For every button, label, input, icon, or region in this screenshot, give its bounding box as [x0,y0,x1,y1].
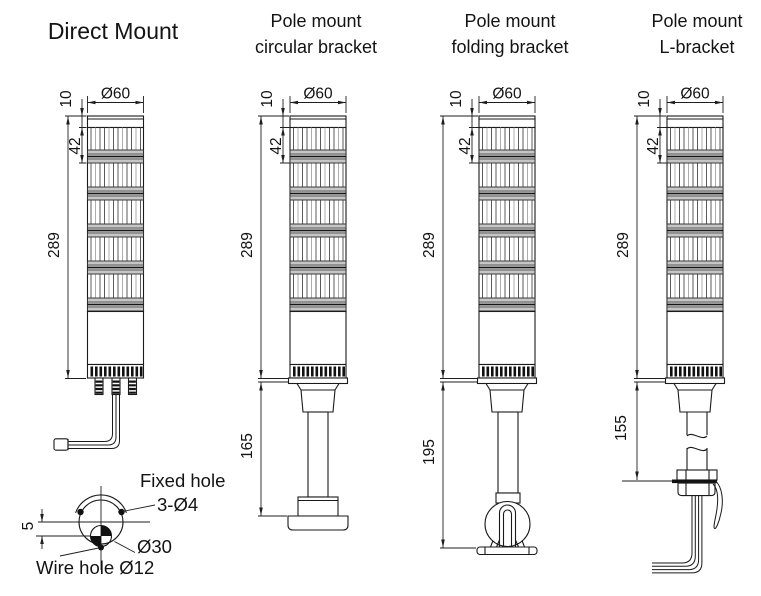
fixed-hole-dot-right [118,509,124,515]
title-pole-l-line1: Pole mount [651,11,742,31]
dim-label-height-l: 289 [615,232,632,258]
dim-label-height-folding: 289 [421,232,438,258]
dim-label-cap-folding: 10 [448,90,465,108]
dim-label-offset: 5 [20,522,37,531]
dim-label-pole-folding: 195 [421,439,438,465]
adapter [297,384,339,413]
direct-mount-base [54,378,137,450]
label-fixed-hole: Fixed hole [140,470,225,491]
stud-center [112,378,120,395]
title-pole-folding-line2: folding bracket [451,37,568,57]
title-pole-folding-line1: Pole mount [464,11,555,31]
label-fixed-hole-spec: 3-Ø4 [157,494,198,515]
direct-mount-view: Direct Mount Ø60 10 42 289 [20,18,225,578]
title-direct-mount: Direct Mount [48,18,179,44]
bottom-view: 5 Fixed hole 3-Ø4 Ø30 Wire hole Ø12 [20,470,225,578]
hinge-ball [485,502,530,547]
upper-nut [677,470,717,480]
wire-sleeve [54,439,68,450]
label-wire-hole: Wire hole Ø12 [36,557,154,578]
dim-label-diameter-folding: Ø60 [492,86,522,103]
dim-label-height-circular: 289 [239,232,256,258]
dim-label-segment-direct: 42 [67,137,84,154]
circular-bracket-base [288,378,348,530]
flange [666,378,725,384]
fixed-hole-dot-left [77,509,83,515]
pole-circular-view: Pole mount circular bracket Ø60 10 42 28… [239,11,377,530]
dim-label-pole-circular: 165 [239,433,256,459]
tower-graphic [667,116,723,378]
dim-label-segment-circular: 42 [268,137,285,154]
technical-drawing-canvas: Direct Mount Ø60 10 42 289 [0,0,761,596]
stud-right [129,378,137,395]
dim-label-pole-l: 155 [613,415,630,441]
pole-break-lines [687,434,707,450]
flange [478,378,537,384]
dim-label-diameter-circular: Ø60 [303,86,333,103]
stud-left [95,378,103,395]
base-sleeve [298,497,338,516]
wire-bundle [68,395,120,449]
label-flange-diameter: Ø30 [137,536,172,557]
tower-graphic [479,116,535,378]
wire-bundle [652,496,702,573]
adapter [486,384,528,413]
dim-label-cap-circular: 10 [259,90,276,108]
base-disc [288,516,348,530]
tower-graphic [88,116,144,378]
pole-l-view: Pole mount L-bracket Ø60 [613,11,743,573]
pole [308,412,328,497]
title-pole-l-line2: L-bracket [659,37,734,57]
title-pole-circular-line1: Pole mount [270,11,361,31]
fixed-hole-dot-bottom [98,545,104,551]
dim-label-segment-folding: 42 [457,137,474,154]
flange [289,378,348,384]
folding-bracket-base [477,378,537,555]
dim-label-diameter-direct: Ø60 [101,86,131,103]
pole [498,412,518,493]
base-plate [477,547,537,555]
dim-label-cap-direct: 10 [58,90,75,108]
drawing-svg: Direct Mount Ø60 10 42 289 [0,0,761,596]
tower-graphic [290,116,346,378]
dim-label-segment-l: 42 [645,137,662,154]
dim-label-height-direct: 289 [46,232,63,258]
dim-label-diameter-l: Ø60 [680,86,710,103]
title-pole-circular-line2: circular bracket [255,37,377,57]
pole-folding-view: Pole mount folding bracket Ø60 [421,11,569,555]
pole [687,412,707,470]
dim-label-cap-l: 10 [636,90,653,108]
adapter [674,384,716,413]
